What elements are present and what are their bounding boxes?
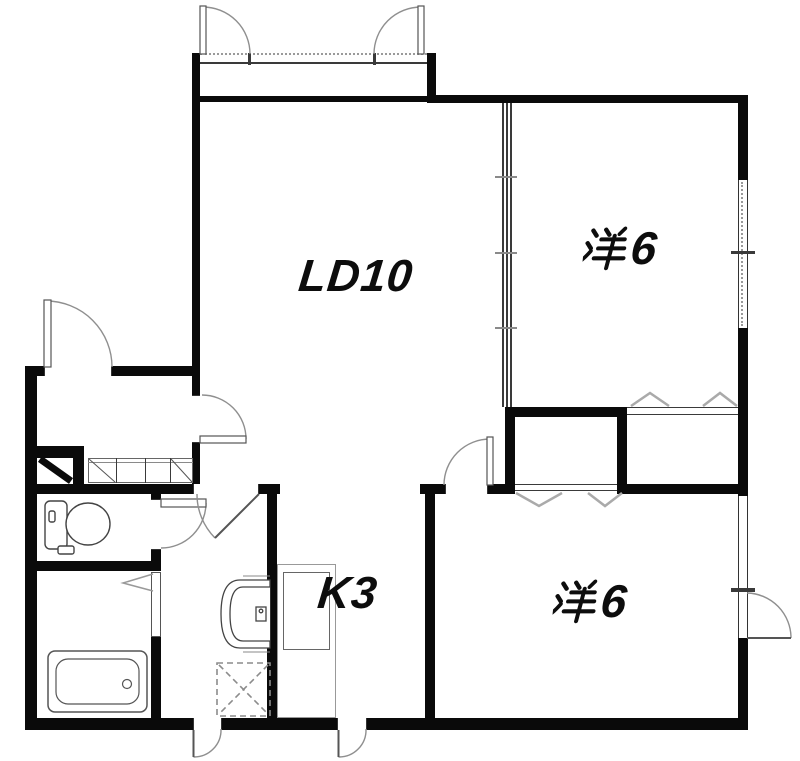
closet-north-folding-icon — [631, 393, 737, 406]
gap-bedroom-south-door — [445, 484, 488, 494]
washing-machine-pan-icon — [217, 663, 270, 716]
gap-kitchen-back-door — [337, 718, 367, 730]
floor-plan-graphics — [0, 0, 800, 761]
utility-back-door-icon — [194, 729, 222, 757]
wall-closet-top — [505, 407, 627, 417]
wall-top-north — [427, 95, 748, 103]
bathtub-icon — [48, 651, 147, 712]
gap-toilet-door — [151, 499, 161, 550]
gap-entrance-door — [44, 366, 112, 376]
toilet-icon — [45, 501, 110, 554]
tick-window-north — [731, 251, 755, 254]
wall-top-beam — [200, 96, 436, 102]
line-shoe-cabinet-top — [88, 462, 193, 463]
wall-closet-divider — [617, 407, 627, 494]
tick-window-south — [731, 588, 755, 592]
room-label-western-room-north: 6 — [582, 224, 660, 271]
wall-kitchen-stub — [420, 484, 447, 494]
balcony-door-right-icon — [374, 6, 424, 54]
line-ld-partition-3 — [510, 103, 512, 407]
room-size-western-room-south: 6 — [599, 578, 629, 624]
floor-plan: LD10 6 6 K3 — [0, 0, 800, 761]
closet-south-folding-icon — [516, 493, 622, 506]
line-shoe-cabinet-d3 — [170, 458, 171, 483]
gap-living-room-door — [192, 395, 200, 443]
balcony-door-left-icon — [200, 6, 250, 54]
line-closet-south-b — [515, 490, 617, 491]
wall-closet-bottom — [627, 484, 748, 494]
tick-balcony-right — [373, 53, 376, 65]
kanji-you-icon — [552, 577, 602, 624]
washbasin-icon — [221, 576, 270, 652]
kitchen-back-door-icon — [339, 729, 367, 757]
wall-entrance-column-right — [73, 446, 84, 484]
tick-partition-1 — [495, 176, 517, 178]
tick-partition-2 — [495, 252, 517, 254]
wall-bath-divider — [151, 637, 161, 730]
window-bedroom-south — [738, 496, 748, 638]
leaf-bathroom-folding-door — [151, 572, 161, 637]
line-closet-south-a — [515, 484, 617, 485]
wall-closet-left — [505, 407, 515, 494]
line-closet-north-b — [627, 414, 738, 415]
gap-washroom-door — [193, 484, 259, 494]
bedroom-south-door-icon — [444, 437, 493, 485]
washroom-door-icon — [197, 494, 259, 538]
line-balcony-rail — [200, 62, 427, 64]
room-label-kitchen: K3 — [316, 570, 380, 615]
gap-utility-back-door — [193, 718, 222, 730]
wall-outer-left — [25, 366, 37, 730]
line-closet-north-a — [627, 407, 738, 408]
wall-toilet-bottom — [37, 561, 161, 571]
entrance-door-icon — [44, 300, 112, 367]
kanji-you-icon — [582, 224, 632, 271]
line-balcony-rail-dotted — [200, 53, 427, 55]
wall-bedroom-south-left — [425, 494, 435, 718]
line-shoe-cabinet-d2 — [145, 458, 146, 483]
room-size-western-room-north: 6 — [629, 225, 659, 271]
line-shoe-cabinet-d1 — [116, 458, 117, 483]
toilet-door-icon — [161, 499, 206, 548]
wall-bottom-outer — [25, 718, 748, 730]
bathroom-folding-door-icon — [123, 574, 153, 591]
line-ld-partition-1 — [502, 103, 504, 407]
room-label-living-dining: LD10 — [297, 253, 416, 298]
window-bedroom-north — [738, 180, 748, 328]
tick-balcony-left — [248, 53, 251, 65]
tick-partition-3 — [495, 327, 517, 329]
wall-washroom-right — [267, 484, 277, 730]
room-label-western-room-south: 6 — [552, 577, 630, 624]
living-room-door-icon — [200, 395, 246, 443]
line-ld-partition-2 — [506, 103, 508, 407]
entrance-step-icon — [40, 459, 71, 481]
bedroom-south-exterior-door-icon — [747, 593, 791, 638]
line-window-north-mid — [741, 182, 743, 326]
